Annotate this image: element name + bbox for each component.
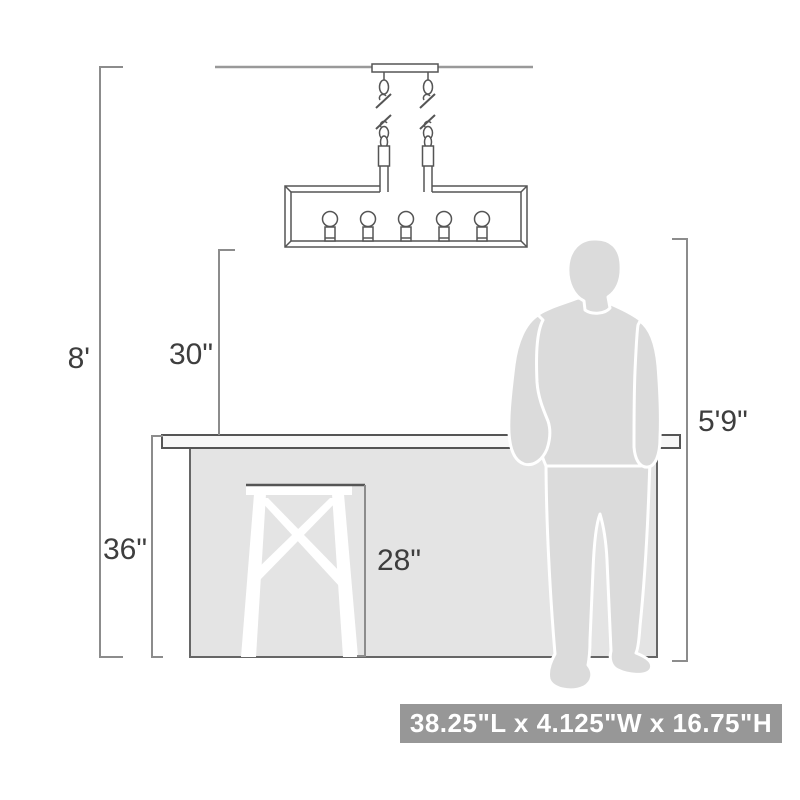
candelabra-bulbs bbox=[323, 212, 490, 242]
dimension-label: 36" bbox=[103, 533, 147, 566]
dimension-label: 8' bbox=[68, 342, 90, 375]
chandelier bbox=[285, 64, 527, 247]
dimension-label: 5'9" bbox=[698, 405, 748, 438]
dimension-line bbox=[100, 67, 123, 657]
bulb-icon bbox=[323, 212, 338, 242]
bulb-icon bbox=[399, 212, 414, 242]
stool-seat bbox=[246, 485, 352, 495]
dimension-8ft: 8' bbox=[68, 67, 123, 657]
chain-right-icon bbox=[420, 72, 435, 192]
dimension-line bbox=[219, 250, 235, 435]
dimension-label: 30" bbox=[169, 338, 213, 371]
bulb-icon bbox=[475, 212, 490, 242]
dimension-line bbox=[672, 239, 687, 661]
dimension-diagram: 8' 30" 36" 28" 5'9" 38.25"L x 4.125"W x … bbox=[0, 0, 800, 800]
dimension-label: 28" bbox=[377, 544, 421, 577]
dimension-36in: 36" bbox=[103, 436, 163, 657]
canopy bbox=[372, 64, 438, 72]
size-badge: 38.25"L x 4.125"W x 16.75"H bbox=[400, 704, 782, 743]
dimension-5ft9in: 5'9" bbox=[672, 239, 748, 661]
dimension-30in: 30" bbox=[169, 250, 235, 435]
bulb-icon bbox=[361, 212, 376, 242]
person-arm-right bbox=[634, 321, 660, 467]
dimension-line bbox=[152, 436, 163, 657]
diagram-drawing: 8' 30" 36" 28" 5'9" bbox=[0, 0, 800, 800]
bulb-icon bbox=[437, 212, 452, 242]
chain-left-icon bbox=[376, 72, 391, 192]
